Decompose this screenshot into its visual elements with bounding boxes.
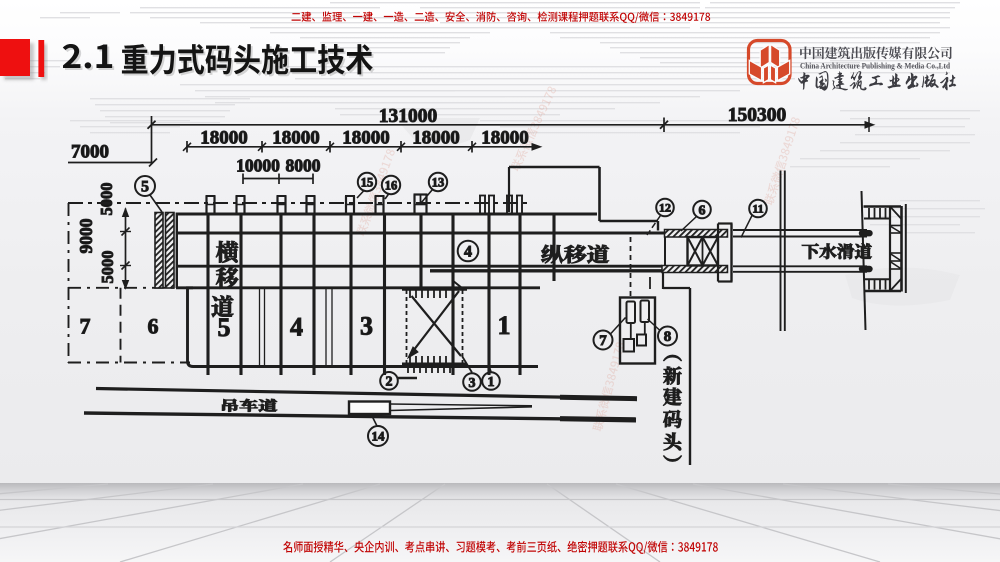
svg-text:16: 16 — [385, 178, 398, 192]
svg-text:18000: 18000 — [412, 128, 460, 149]
svg-text:7000: 7000 — [71, 142, 109, 163]
svg-text:18000: 18000 — [200, 128, 248, 149]
svg-text:5: 5 — [141, 179, 149, 196]
svg-text:China Architecture Publishing: China Architecture Publishing & Media Co… — [800, 62, 951, 71]
svg-text:5000: 5000 — [98, 251, 117, 284]
svg-text:4: 4 — [464, 244, 472, 261]
svg-text:7: 7 — [599, 333, 607, 349]
svg-text:3: 3 — [469, 376, 476, 391]
svg-text:9000: 9000 — [76, 218, 96, 253]
svg-text:1: 1 — [498, 311, 511, 340]
svg-text:10000: 10000 — [236, 156, 280, 176]
svg-text:6: 6 — [148, 314, 159, 339]
svg-text:7: 7 — [80, 314, 91, 339]
svg-text:1: 1 — [488, 375, 495, 390]
svg-text:18000: 18000 — [272, 128, 320, 149]
svg-text:15: 15 — [361, 175, 374, 189]
svg-text:2: 2 — [386, 375, 393, 390]
svg-text:3: 3 — [360, 312, 373, 341]
svg-text:13: 13 — [432, 175, 445, 189]
svg-text:131000: 131000 — [379, 106, 438, 127]
svg-text:5: 5 — [218, 313, 231, 342]
svg-text:150300: 150300 — [728, 105, 787, 126]
svg-text:18000: 18000 — [481, 128, 529, 149]
svg-text:18000: 18000 — [342, 128, 390, 149]
svg-text:8: 8 — [664, 329, 672, 345]
svg-text:6: 6 — [699, 203, 706, 218]
svg-text:12: 12 — [659, 201, 671, 215]
svg-text:8000: 8000 — [286, 156, 321, 176]
svg-text:4: 4 — [290, 313, 303, 342]
svg-text:11: 11 — [752, 202, 763, 216]
svg-text:5000: 5000 — [97, 183, 116, 216]
svg-text:14: 14 — [372, 428, 386, 443]
